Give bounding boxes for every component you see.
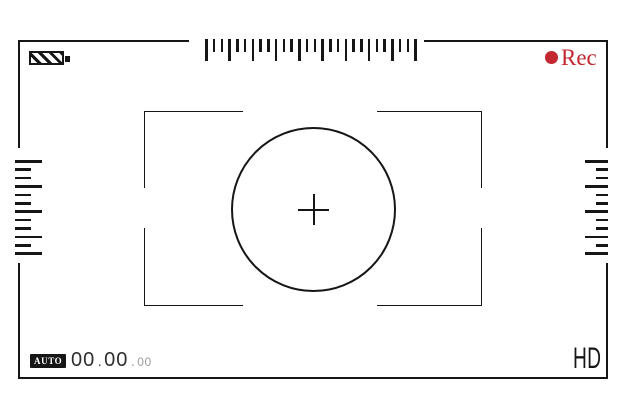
battery-icon bbox=[29, 51, 64, 65]
ruler-tick bbox=[585, 160, 608, 163]
rec-label: Rec bbox=[561, 45, 597, 70]
focus-scale-left bbox=[15, 160, 43, 255]
camera-viewfinder: Rec AUTO 00 . 00 . 00 HD bbox=[0, 0, 626, 418]
ruler-tick bbox=[329, 39, 332, 52]
ruler-tick bbox=[228, 39, 231, 61]
ruler-tick bbox=[383, 39, 386, 52]
ruler-tick bbox=[15, 236, 42, 239]
ruler-tick bbox=[321, 39, 324, 61]
focus-scale-right bbox=[584, 160, 608, 255]
ruler-tick bbox=[15, 244, 31, 247]
rec-indicator[interactable]: Rec bbox=[545, 45, 597, 70]
ruler-tick bbox=[407, 39, 410, 52]
ruler-tick bbox=[15, 210, 42, 213]
ruler-tick bbox=[259, 39, 262, 52]
timecode-hours: 00 bbox=[71, 349, 95, 372]
ruler-tick bbox=[585, 236, 608, 239]
ruler-tick bbox=[345, 39, 348, 61]
timecode-seconds: 00 bbox=[137, 355, 151, 369]
hd-quality-badge[interactable]: HD bbox=[573, 344, 601, 374]
timecode-separator: . bbox=[131, 353, 135, 369]
frame-right-lower-line bbox=[606, 263, 608, 379]
ruler-tick bbox=[15, 202, 31, 205]
timecode: 00 . 00 . 00 bbox=[71, 349, 152, 372]
auto-mode-badge[interactable]: AUTO bbox=[30, 354, 66, 368]
ruler-tick bbox=[414, 39, 417, 61]
frame-top-right-line bbox=[424, 40, 608, 42]
ruler-tick bbox=[244, 39, 247, 52]
ruler-tick bbox=[585, 252, 608, 255]
ruler-tick bbox=[596, 168, 608, 171]
focus-bracket-top-left bbox=[144, 111, 243, 188]
crosshair-icon bbox=[313, 194, 315, 225]
frame-top-left-line bbox=[18, 40, 189, 42]
ruler-tick bbox=[360, 39, 363, 52]
ruler-tick bbox=[221, 39, 224, 52]
frame-left-upper-line bbox=[18, 40, 20, 148]
ruler-tick bbox=[352, 39, 355, 52]
ruler-tick bbox=[290, 39, 293, 52]
focus-bracket-bottom-right bbox=[377, 228, 482, 306]
ruler-tick bbox=[205, 39, 208, 61]
focus-bracket-bottom-left bbox=[144, 228, 243, 306]
ruler-tick bbox=[391, 39, 394, 61]
ruler-tick bbox=[368, 39, 371, 61]
ruler-tick bbox=[15, 185, 42, 188]
frame-right-upper-line bbox=[606, 40, 608, 148]
timecode-separator: . bbox=[98, 353, 102, 369]
focus-bracket-top-right bbox=[377, 111, 482, 188]
ruler-tick bbox=[337, 39, 340, 52]
ruler-tick bbox=[15, 252, 42, 255]
ruler-tick bbox=[585, 210, 608, 213]
ruler-tick bbox=[376, 39, 379, 52]
ruler-tick bbox=[236, 39, 239, 52]
ruler-tick bbox=[596, 194, 608, 197]
timecode-minutes: 00 bbox=[104, 349, 128, 372]
ruler-tick bbox=[596, 244, 608, 247]
record-dot-icon bbox=[545, 51, 558, 64]
ruler-tick bbox=[596, 202, 608, 205]
ruler-tick bbox=[15, 177, 31, 180]
ruler-tick bbox=[596, 219, 608, 222]
ruler-tick bbox=[314, 39, 317, 52]
ruler-tick bbox=[15, 160, 42, 163]
frame-bottom-line bbox=[18, 377, 608, 379]
ruler-tick bbox=[15, 219, 31, 222]
ruler-tick bbox=[15, 168, 31, 171]
exposure-scale-top bbox=[205, 39, 417, 61]
ruler-tick bbox=[298, 39, 301, 61]
ruler-tick bbox=[252, 39, 255, 61]
ruler-tick bbox=[585, 185, 608, 188]
ruler-tick bbox=[596, 177, 608, 180]
ruler-tick bbox=[306, 39, 309, 52]
ruler-tick bbox=[399, 39, 402, 52]
ruler-tick bbox=[596, 227, 608, 230]
ruler-tick bbox=[283, 39, 286, 52]
battery-terminal-icon bbox=[65, 56, 70, 62]
ruler-tick bbox=[15, 194, 31, 197]
ruler-tick bbox=[267, 39, 270, 52]
frame-left-lower-line bbox=[18, 263, 20, 379]
ruler-tick bbox=[275, 39, 278, 61]
ruler-tick bbox=[15, 227, 31, 230]
ruler-tick bbox=[213, 39, 216, 52]
